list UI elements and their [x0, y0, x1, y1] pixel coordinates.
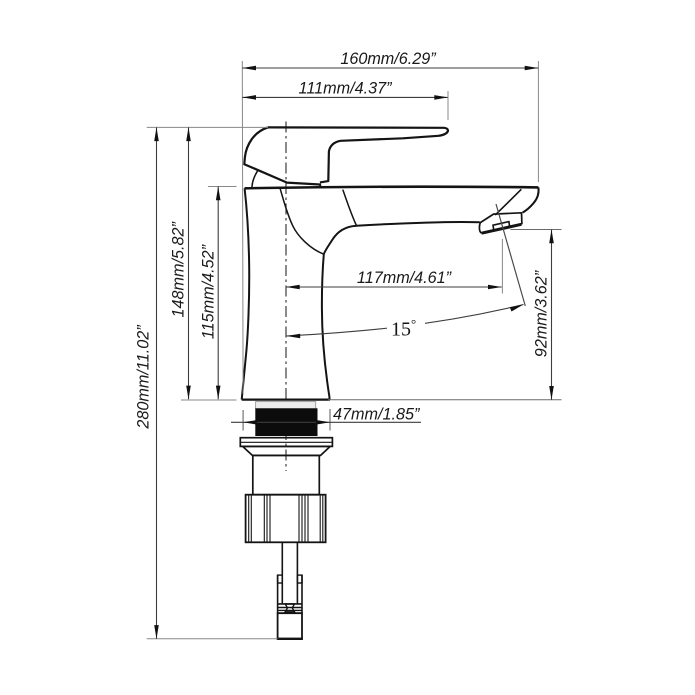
svg-text:111mm/4.37”: 111mm/4.37”: [299, 80, 393, 98]
svg-text:280mm/11.02”: 280mm/11.02”: [135, 325, 153, 430]
svg-text:115mm/4.52”: 115mm/4.52”: [200, 244, 218, 339]
svg-text:160mm/6.29”: 160mm/6.29”: [340, 50, 436, 68]
svg-text:92mm/3.62”: 92mm/3.62”: [533, 270, 551, 357]
svg-text:117mm/4.61”: 117mm/4.61”: [357, 269, 452, 287]
svg-text:47mm/1.85”: 47mm/1.85”: [333, 406, 420, 424]
svg-text:148mm/5.82”: 148mm/5.82”: [170, 222, 188, 318]
